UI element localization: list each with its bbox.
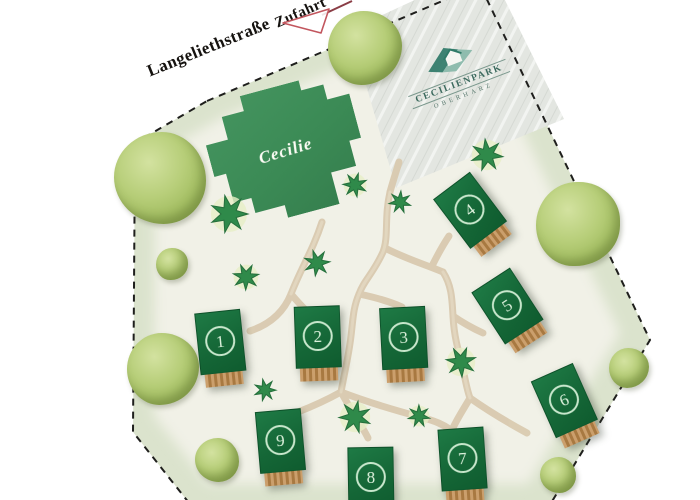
house-number-badge: 2	[302, 320, 333, 351]
house-terrace	[300, 367, 338, 381]
shrub-icon	[228, 259, 264, 295]
house-number-badge: 6	[544, 380, 584, 420]
house-number-badge: 8	[356, 462, 387, 493]
house-roof: 7	[437, 426, 487, 491]
house-terrace	[446, 489, 485, 500]
shrub-icon	[466, 134, 508, 176]
tree-icon	[114, 132, 206, 224]
shrub-icon	[403, 400, 435, 432]
shrub-icon	[334, 396, 376, 438]
house-number-badge: 7	[446, 442, 478, 474]
site-plan-canvas: Langeliethstraße Zufahrt CECILIENPARK OB…	[0, 0, 700, 500]
tree-icon	[540, 457, 576, 493]
holiday-house-9: 9	[255, 408, 307, 487]
tree-icon	[536, 182, 620, 266]
shrub-icon	[338, 168, 372, 202]
shrub-icon	[384, 186, 416, 218]
holiday-house-3: 3	[379, 306, 429, 383]
holiday-house-1: 1	[194, 309, 248, 388]
house-roof: 1	[194, 309, 246, 375]
house-terrace	[386, 368, 425, 383]
shrub-icon	[299, 245, 335, 281]
shrub-icon	[441, 342, 481, 382]
house-number-badge: 1	[204, 325, 237, 358]
house-number-badge: 9	[264, 424, 297, 457]
house-number-badge: 5	[486, 284, 527, 325]
house-roof: 3	[379, 306, 428, 370]
holiday-house-7: 7	[437, 426, 488, 500]
tree-icon	[195, 438, 239, 482]
shrub-icon	[205, 190, 253, 238]
holiday-house-2: 2	[294, 305, 343, 382]
house-roof: 2	[294, 305, 342, 369]
tree-icon	[156, 248, 188, 280]
central-building-label: Cecilie	[257, 133, 316, 168]
house-number-badge: 3	[388, 321, 420, 353]
shrub-icon	[249, 374, 281, 406]
house-roof: 8	[347, 447, 394, 500]
house-roof: 9	[255, 408, 306, 474]
holiday-house-8: 8	[347, 447, 394, 500]
house-number-badge: 4	[448, 189, 490, 231]
